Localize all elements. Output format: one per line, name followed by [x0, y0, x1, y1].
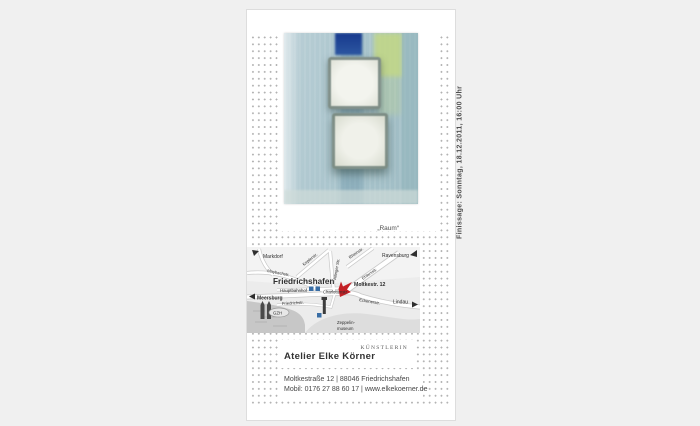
station-icon [309, 287, 314, 292]
artist-section: Atelier Elke Körner KÜNSTLERIN [280, 340, 413, 368]
contact-address: Moltkestraße 12 | 88046 Friedrichshafen [280, 375, 423, 385]
map-label-marker: Moltkestr. 12 [354, 282, 386, 288]
artist-name: Atelier Elke Körner [284, 351, 375, 362]
map-label-markdorf: Markdorf [263, 254, 283, 260]
map-label-charlottenstr: Charlottenstr. [323, 290, 348, 295]
map-label-city: Friedrichshafen [273, 277, 334, 286]
parking-icon [317, 313, 322, 318]
map-label-lindau: Lindau [393, 300, 408, 306]
map-label-hauptbahnhof: Hauptbahnhof [280, 288, 308, 293]
contact-mobile-web: Mobil: 0176 27 88 60 17 | www.elkekoerne… [280, 385, 423, 395]
map-label-zeppelin-1: Zeppelin- [337, 320, 355, 325]
painting-upper-square [328, 57, 381, 109]
page-background: Finissage: Sonntag, 18.12.2011, 16:00 Uh… [0, 0, 700, 426]
city-map: Markdorf Ravensburg Meersburg Lindau Fri… [247, 247, 420, 333]
map-graphic: Markdorf Ravensburg Meersburg Lindau Fri… [247, 247, 420, 333]
station-icon [316, 287, 321, 292]
painting-navy-block [335, 33, 362, 55]
finissage-vertical-text: Finissage: Sonntag, 18.12.2011, 16:00 Uh… [453, 43, 467, 239]
contact-section: Moltkestraße 12 | 88046 Friedrichshafen … [280, 372, 423, 398]
map-label-meersburg: Meersburg [257, 296, 283, 302]
artist-role: KÜNSTLERIN [360, 345, 408, 351]
abstract-painting [284, 33, 418, 204]
flyer-card: Finissage: Sonntag, 18.12.2011, 16:00 Uh… [247, 10, 455, 420]
map-label-gzh: GZH [273, 311, 282, 316]
map-label-zeppelin-2: museum [337, 326, 354, 331]
artwork-caption: „Raum“ [377, 225, 399, 232]
painting-lower-square [332, 113, 388, 169]
artwork-section: Finissage: Sonntag, 18.12.2011, 16:00 Uh… [280, 28, 437, 231]
map-label-ravensburg: Ravensburg [382, 253, 409, 259]
